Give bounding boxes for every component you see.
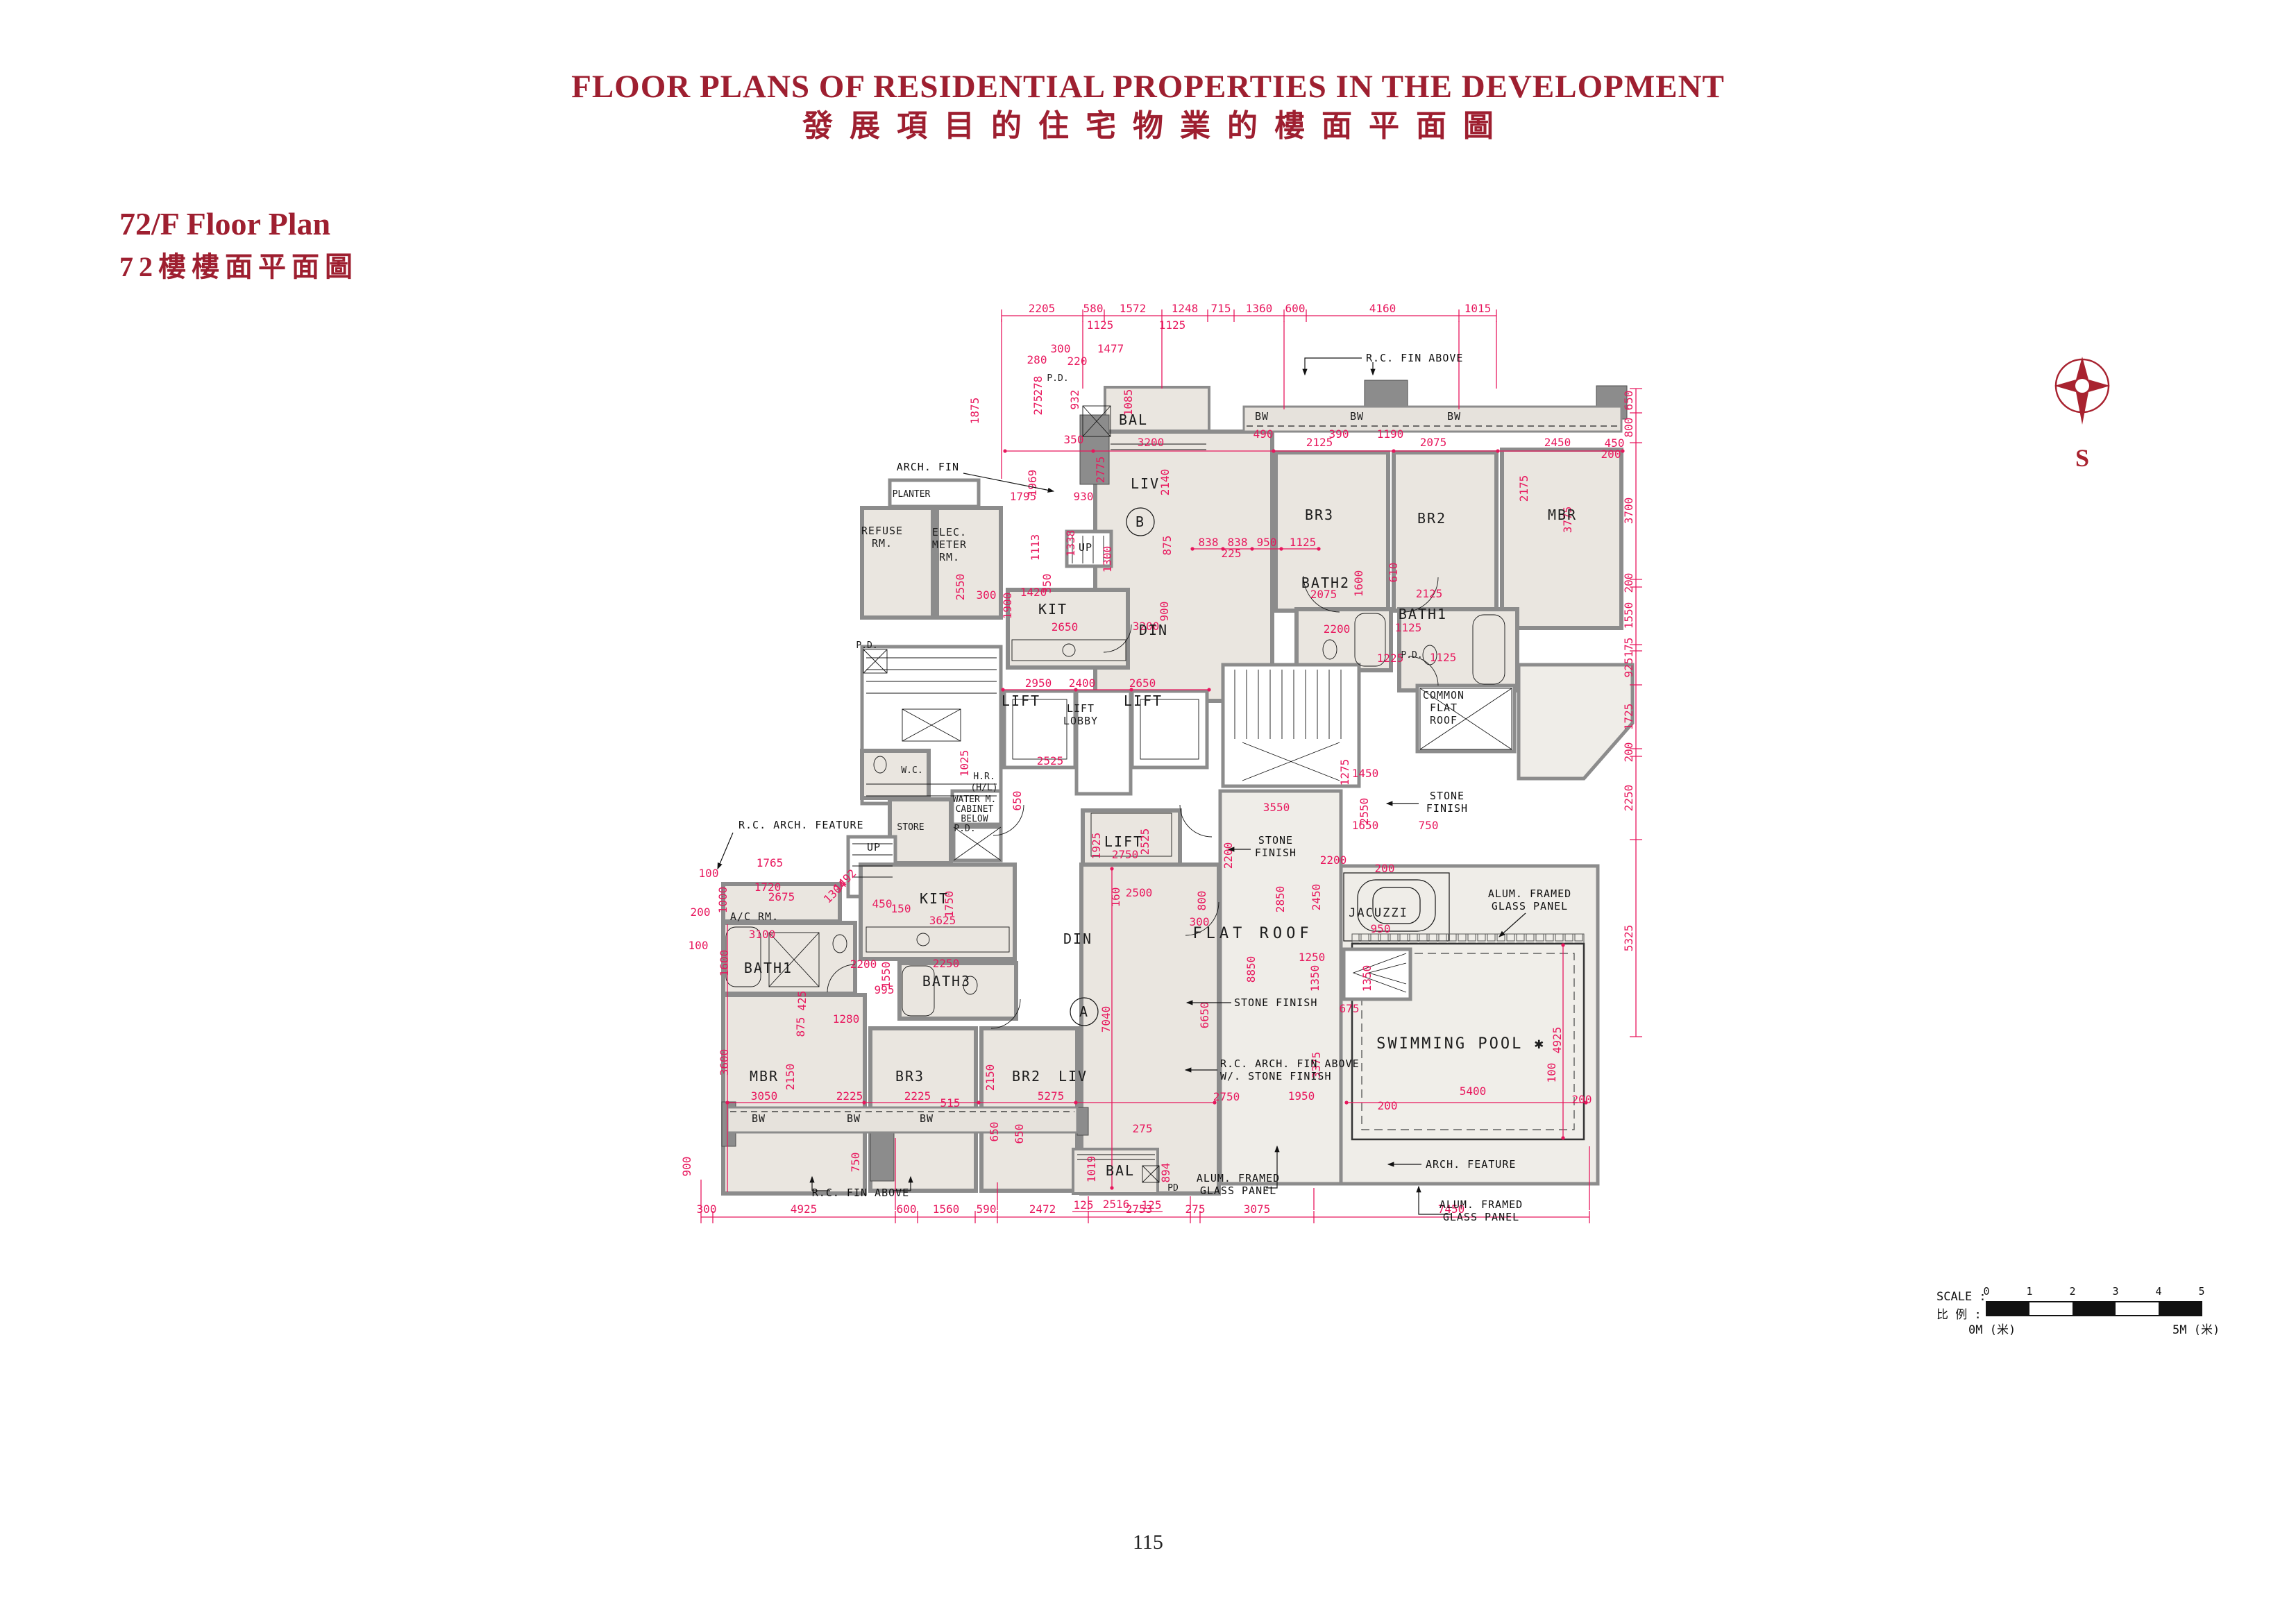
- svg-text:900: 900: [680, 1157, 693, 1177]
- br3-a-label: BR3: [895, 1068, 925, 1085]
- svg-text:1560: 1560: [933, 1203, 960, 1216]
- svg-text:1250: 1250: [1299, 951, 1326, 964]
- svg-text:515: 515: [940, 1096, 961, 1110]
- svg-text:W/. STONE FINISH: W/. STONE FINISH: [1220, 1070, 1332, 1082]
- svg-text:1950: 1950: [1288, 1089, 1315, 1103]
- svg-text:2175: 2175: [1517, 475, 1530, 502]
- svg-text:300: 300: [977, 588, 997, 602]
- page-title-zh: 發展項目的住宅物業的樓面平面圖: [802, 109, 1510, 143]
- svg-text:GLASS PANEL: GLASS PANEL: [1443, 1211, 1519, 1223]
- svg-text:1125: 1125: [1290, 536, 1317, 549]
- svg-text:715: 715: [1211, 302, 1231, 315]
- svg-text:150: 150: [891, 902, 911, 915]
- svg-text:2525: 2525: [1037, 754, 1064, 767]
- svg-text:BW: BW: [1255, 410, 1269, 423]
- compass-south-label: S: [2075, 444, 2089, 472]
- svg-text:650: 650: [988, 1122, 1001, 1142]
- jacuzzi-label: JACUZZI: [1349, 906, 1408, 920]
- svg-text:2750: 2750: [1213, 1090, 1240, 1103]
- svg-text:610: 610: [1387, 563, 1400, 583]
- svg-text:2075: 2075: [1420, 436, 1447, 449]
- svg-text:932: 932: [1068, 390, 1081, 410]
- svg-text:4: 4: [2155, 1285, 2161, 1298]
- svg-text:1900: 1900: [1001, 593, 1014, 620]
- svg-text:2775: 2775: [1094, 457, 1107, 484]
- svg-text:200: 200: [1378, 1099, 1398, 1112]
- svg-text:FINISH: FINISH: [1255, 847, 1297, 859]
- bath2-b-label: BATH2: [1301, 575, 1350, 591]
- svg-text:650: 650: [1013, 1124, 1026, 1144]
- svg-text:1: 1: [2026, 1285, 2032, 1298]
- svg-text:FINISH: FINISH: [1426, 802, 1468, 815]
- svg-text:2225: 2225: [904, 1089, 931, 1103]
- svg-text:2250: 2250: [1622, 785, 1635, 812]
- bath1-b-label: BATH1: [1399, 606, 1447, 622]
- svg-text:200: 200: [1622, 573, 1635, 593]
- svg-text:350: 350: [1064, 433, 1084, 446]
- swimming-pool-label: SWIMMING POOL ✱: [1376, 1035, 1546, 1053]
- pd-bal-label: PD: [1167, 1183, 1179, 1193]
- svg-text:BW: BW: [847, 1112, 861, 1125]
- svg-text:R.C. ARCH. FIN ABOVE: R.C. ARCH. FIN ABOVE: [1220, 1057, 1360, 1070]
- bath3-a-label: BATH3: [922, 973, 971, 989]
- svg-text:2516: 2516: [1103, 1198, 1130, 1211]
- svg-text:5275: 5275: [1038, 1089, 1065, 1103]
- svg-text:1125: 1125: [1395, 621, 1422, 634]
- svg-text:390: 390: [1329, 427, 1349, 441]
- svg-text:450: 450: [872, 897, 893, 910]
- svg-text:1725: 1725: [1622, 704, 1635, 731]
- living-b-label: LIV: [1131, 475, 1160, 492]
- svg-text:2675: 2675: [768, 890, 795, 903]
- svg-text:3200: 3200: [1138, 436, 1165, 449]
- svg-text:160: 160: [1109, 887, 1122, 908]
- svg-text:1113: 1113: [1029, 534, 1042, 561]
- lift2-label: LIFT: [1124, 692, 1163, 709]
- svg-text:2400: 2400: [1069, 677, 1096, 690]
- floor-label-en: 72/F Floor Plan: [119, 206, 330, 241]
- svg-text:750: 750: [1419, 819, 1439, 832]
- svg-text:3700: 3700: [1622, 498, 1635, 525]
- svg-text:100: 100: [699, 867, 719, 880]
- svg-text:200: 200: [691, 906, 711, 919]
- svg-text:1338: 1338: [1064, 530, 1077, 557]
- svg-text:1125: 1125: [1430, 651, 1457, 664]
- svg-text:WATER M.: WATER M.: [953, 794, 997, 805]
- unit-b-mark: B: [1136, 513, 1145, 530]
- stone-finish-note: STONE FINISH: [1234, 996, 1317, 1009]
- svg-text:COMMON: COMMON: [1423, 689, 1464, 702]
- svg-text:BELOW: BELOW: [961, 814, 988, 824]
- svg-text:ALUM. FRAMED: ALUM. FRAMED: [1197, 1172, 1280, 1184]
- svg-text:278: 278: [1031, 376, 1045, 396]
- svg-text:ROOF: ROOF: [1430, 714, 1458, 726]
- svg-text:580: 580: [1083, 302, 1104, 315]
- wc-label: W.C.: [901, 765, 922, 776]
- svg-text:2125: 2125: [1416, 587, 1443, 600]
- svg-text:650: 650: [1011, 791, 1024, 811]
- svg-text:175: 175: [1622, 638, 1635, 658]
- compass-icon: S: [2054, 357, 2110, 472]
- svg-text:STONE: STONE: [1258, 834, 1293, 847]
- svg-text:300: 300: [697, 1203, 717, 1216]
- bath1-a: [723, 923, 855, 994]
- svg-text:2200: 2200: [850, 958, 877, 971]
- svg-text:1765: 1765: [757, 856, 784, 869]
- svg-text:800: 800: [1195, 891, 1208, 911]
- bedroom2-b: [1394, 452, 1496, 611]
- flat-roof-label: FLAT ROOF: [1192, 925, 1312, 942]
- svg-text:875: 875: [794, 1017, 807, 1037]
- kitchen-b-label: KIT: [1038, 601, 1067, 618]
- svg-text:1000: 1000: [716, 887, 729, 914]
- svg-text:220: 220: [1067, 355, 1088, 368]
- svg-text:2472: 2472: [1029, 1203, 1056, 1216]
- pd-label: P.D.: [1047, 373, 1068, 384]
- svg-text:LIFT: LIFT: [1067, 702, 1095, 715]
- arch-feature-note: ARCH. FEATURE: [1426, 1158, 1516, 1171]
- br2-a-label: BR2: [1012, 1068, 1041, 1085]
- svg-text:H.R.: H.R.: [973, 772, 995, 782]
- up-a-label: UP: [867, 841, 881, 853]
- svg-text:5325: 5325: [1622, 925, 1635, 952]
- pool-steps: [1344, 949, 1410, 999]
- kitchen-a: [861, 865, 1015, 959]
- svg-text:1600: 1600: [1352, 570, 1365, 597]
- svg-text:STONE: STONE: [1430, 790, 1464, 802]
- svg-text:3100: 3100: [749, 928, 776, 941]
- svg-text:750: 750: [849, 1153, 862, 1173]
- svg-text:2225: 2225: [836, 1089, 863, 1103]
- svg-text:LOBBY: LOBBY: [1063, 715, 1098, 727]
- svg-text:875: 875: [1160, 536, 1174, 556]
- svg-text:900: 900: [1158, 602, 1171, 622]
- svg-text:225: 225: [1222, 547, 1242, 560]
- svg-text:4160: 4160: [1369, 302, 1396, 315]
- svg-text:4925: 4925: [1551, 1027, 1564, 1054]
- svg-text:7040: 7040: [1099, 1006, 1113, 1033]
- planter-label: PLANTER: [893, 489, 931, 500]
- svg-text:1550: 1550: [1622, 602, 1635, 629]
- scale-end-label: 5M (米): [2172, 1323, 2220, 1337]
- scale-label-en: SCALE :: [1936, 1290, 1986, 1304]
- scale-start-label: 0M (米): [1968, 1323, 2016, 1337]
- svg-text:200: 200: [1622, 742, 1635, 763]
- svg-text:2: 2: [2069, 1285, 2075, 1298]
- svg-text:8850: 8850: [1244, 956, 1258, 983]
- floor-label-zh: 72樓樓面平面圖: [119, 251, 358, 282]
- svg-text:200: 200: [1375, 862, 1395, 875]
- svg-text:2450: 2450: [1544, 436, 1571, 449]
- svg-text:3075: 3075: [1244, 1203, 1271, 1216]
- svg-text:ALUM. FRAMED: ALUM. FRAMED: [1488, 887, 1571, 900]
- svg-text:(H/L): (H/L): [970, 783, 997, 793]
- svg-text:2500: 2500: [1126, 886, 1153, 899]
- svg-text:675: 675: [1340, 1002, 1360, 1015]
- brochure-page: FLOOR PLANS OF RESIDENTIAL PROPERTIES IN…: [0, 0, 2296, 1623]
- pd-a-label: P.D.: [954, 824, 975, 834]
- svg-text:ALUM. FRAMED: ALUM. FRAMED: [1440, 1198, 1523, 1211]
- svg-text:1350: 1350: [1308, 965, 1322, 992]
- svg-text:2850: 2850: [1274, 886, 1287, 913]
- svg-text:2650: 2650: [1052, 620, 1079, 634]
- svg-text:200: 200: [1572, 1093, 1592, 1106]
- svg-text:2200: 2200: [1320, 853, 1347, 867]
- store-label: STORE: [897, 822, 924, 833]
- svg-text:1225: 1225: [1377, 652, 1404, 665]
- svg-text:650: 650: [1622, 391, 1635, 411]
- svg-text:3: 3: [2112, 1285, 2118, 1298]
- svg-text:3550: 3550: [1263, 801, 1290, 814]
- svg-text:894: 894: [1159, 1163, 1172, 1183]
- rc-arch-feature-note: R.C. ARCH. FEATURE: [738, 819, 864, 831]
- ac-room-label: A/C RM.: [730, 910, 779, 923]
- svg-text:CABINET: CABINET: [956, 804, 994, 815]
- svg-text:1572: 1572: [1120, 302, 1147, 315]
- scale-label-zh: 比 例 :: [1936, 1308, 1982, 1322]
- svg-text:1450: 1450: [1352, 767, 1379, 780]
- svg-text:275: 275: [1031, 396, 1045, 416]
- lift-a-label: LIFT: [1104, 833, 1143, 850]
- svg-text:GLASS PANEL: GLASS PANEL: [1200, 1184, 1276, 1197]
- svg-text:1125: 1125: [1087, 318, 1114, 332]
- svg-text:490: 490: [1253, 427, 1274, 441]
- bath1-a-label: BATH1: [744, 960, 793, 976]
- balcony-a-label: BAL: [1106, 1162, 1135, 1179]
- svg-text:RM.: RM.: [872, 537, 893, 550]
- svg-text:ELEC.: ELEC.: [932, 526, 967, 538]
- svg-text:1600: 1600: [718, 950, 731, 977]
- svg-text:1125: 1125: [1159, 318, 1186, 332]
- svg-text:838: 838: [1199, 536, 1219, 549]
- svg-text:590: 590: [977, 1203, 997, 1216]
- mbr-b-label: MBR: [1548, 507, 1577, 523]
- bath3-a: [900, 963, 1016, 1019]
- svg-text:5: 5: [2198, 1285, 2204, 1298]
- svg-text:350: 350: [1040, 574, 1054, 594]
- up-b-label: UP: [1079, 541, 1092, 554]
- svg-text:800: 800: [1622, 418, 1635, 438]
- svg-text:280: 280: [1027, 353, 1047, 366]
- dining-b-label: DIN: [1139, 622, 1168, 638]
- svg-text:BW: BW: [1350, 410, 1364, 423]
- svg-text:200: 200: [1601, 448, 1621, 461]
- svg-text:1477: 1477: [1097, 342, 1124, 355]
- br2-b-label: BR2: [1417, 510, 1446, 527]
- svg-text:950: 950: [1371, 922, 1391, 935]
- svg-text:2650: 2650: [1129, 677, 1156, 690]
- svg-text:1190: 1190: [1377, 427, 1404, 441]
- svg-text:275: 275: [1133, 1122, 1153, 1135]
- svg-text:1280: 1280: [833, 1012, 860, 1026]
- svg-text:275: 275: [1185, 1203, 1206, 1216]
- mbr-a-label: MBR: [750, 1068, 779, 1085]
- svg-text:BW: BW: [1447, 410, 1461, 423]
- svg-text:5400: 5400: [1460, 1085, 1487, 1098]
- svg-text:3600: 3600: [718, 1049, 731, 1076]
- svg-text:925: 925: [1622, 658, 1635, 678]
- svg-text:1275: 1275: [1338, 759, 1351, 786]
- br3-b-label: BR3: [1305, 507, 1334, 523]
- svg-text:1925: 1925: [1090, 833, 1103, 860]
- svg-text:1650: 1650: [1352, 819, 1379, 832]
- svg-text:REFUSE: REFUSE: [861, 525, 903, 537]
- rc-fin-above-note: R.C. FIN ABOVE: [1366, 352, 1463, 364]
- svg-text:1025: 1025: [958, 750, 971, 777]
- unit-a-mark: A: [1079, 1003, 1089, 1020]
- svg-text:BW: BW: [752, 1112, 766, 1125]
- arch-fin-note: ARCH. FIN: [897, 461, 959, 473]
- svg-text:930: 930: [1074, 490, 1094, 503]
- svg-text:600: 600: [897, 1203, 917, 1216]
- kitchen-a-label: KIT: [920, 890, 949, 907]
- svg-text:2140: 2140: [1158, 469, 1172, 496]
- svg-text:1015: 1015: [1464, 302, 1492, 315]
- svg-text:GLASS PANEL: GLASS PANEL: [1492, 900, 1568, 912]
- svg-text:2205: 2205: [1029, 302, 1056, 315]
- svg-text:2200: 2200: [1324, 622, 1351, 636]
- svg-text:300: 300: [1051, 342, 1071, 355]
- svg-text:2250: 2250: [933, 957, 960, 970]
- svg-text:100: 100: [1545, 1063, 1558, 1083]
- svg-text:1248: 1248: [1172, 302, 1199, 315]
- din-a-label: DIN: [1063, 931, 1092, 947]
- plan-rooms: [723, 387, 1632, 1193]
- svg-text:100: 100: [689, 939, 709, 952]
- svg-text:RM.: RM.: [939, 551, 960, 563]
- svg-text:METER: METER: [932, 538, 967, 551]
- svg-text:1350: 1350: [1360, 965, 1374, 992]
- svg-text:2150: 2150: [784, 1064, 797, 1091]
- balcony-b-label: BAL: [1119, 411, 1148, 428]
- svg-text:950: 950: [1257, 536, 1277, 549]
- svg-text:2200: 2200: [1222, 842, 1235, 869]
- svg-text:4925: 4925: [791, 1203, 818, 1216]
- svg-text:FLAT: FLAT: [1430, 702, 1458, 714]
- svg-text:2950: 2950: [1025, 677, 1052, 690]
- svg-text:1019: 1019: [1085, 1156, 1098, 1183]
- svg-text:2450: 2450: [1310, 884, 1323, 911]
- svg-text:1300: 1300: [1101, 546, 1114, 573]
- lift1-label: LIFT: [1002, 692, 1040, 709]
- svg-text:2150: 2150: [984, 1064, 997, 1091]
- page-number: 115: [1133, 1531, 1163, 1554]
- svg-text:1360: 1360: [1246, 302, 1273, 315]
- svg-text:995: 995: [875, 983, 895, 996]
- common-flat-roof: [1519, 665, 1632, 779]
- liv-a-label: LIV: [1058, 1068, 1088, 1085]
- svg-text:3050: 3050: [751, 1089, 778, 1103]
- svg-text:0: 0: [1983, 1285, 1989, 1298]
- pd-core-label: P.D.: [856, 640, 877, 651]
- svg-text:BW: BW: [920, 1112, 934, 1125]
- bw-band-top: [1244, 407, 1621, 432]
- svg-text:125: 125: [1074, 1198, 1094, 1212]
- svg-text:1875: 1875: [968, 398, 981, 425]
- floor-plan-canvas: FLOOR PLANS OF RESIDENTIAL PROPERTIES IN…: [0, 0, 2296, 1623]
- svg-text:2550: 2550: [954, 574, 967, 601]
- svg-text:6650: 6650: [1198, 1002, 1211, 1029]
- scale-bar: SCALE : 比 例 : 0 1 2 3 4 5 0M (米) 5M (米): [1936, 1285, 2220, 1337]
- svg-text:1969: 1969: [1026, 470, 1039, 497]
- pd-b-label: P.D.: [1401, 650, 1422, 661]
- rc-fin-above-bottom-note: R.C. FIN ABOVE: [812, 1187, 909, 1199]
- svg-text:125: 125: [1142, 1198, 1162, 1212]
- svg-text:425: 425: [795, 991, 809, 1011]
- page-title-en: FLOOR PLANS OF RESIDENTIAL PROPERTIES IN…: [571, 69, 1725, 105]
- svg-text:600: 600: [1285, 302, 1306, 315]
